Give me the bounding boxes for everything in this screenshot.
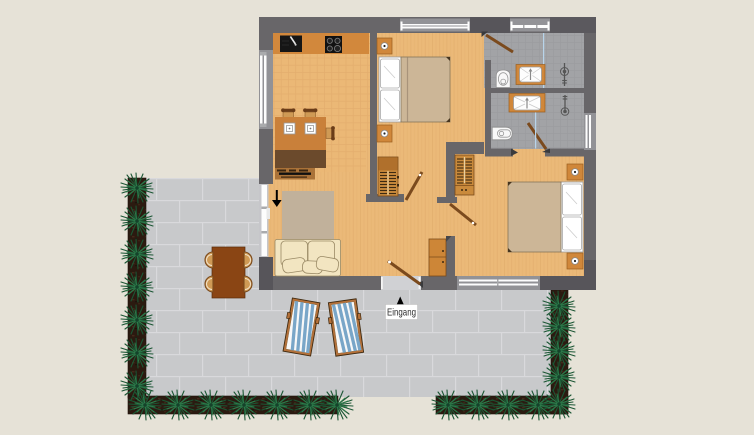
svg-text:Eingang: Eingang <box>387 307 416 319</box>
